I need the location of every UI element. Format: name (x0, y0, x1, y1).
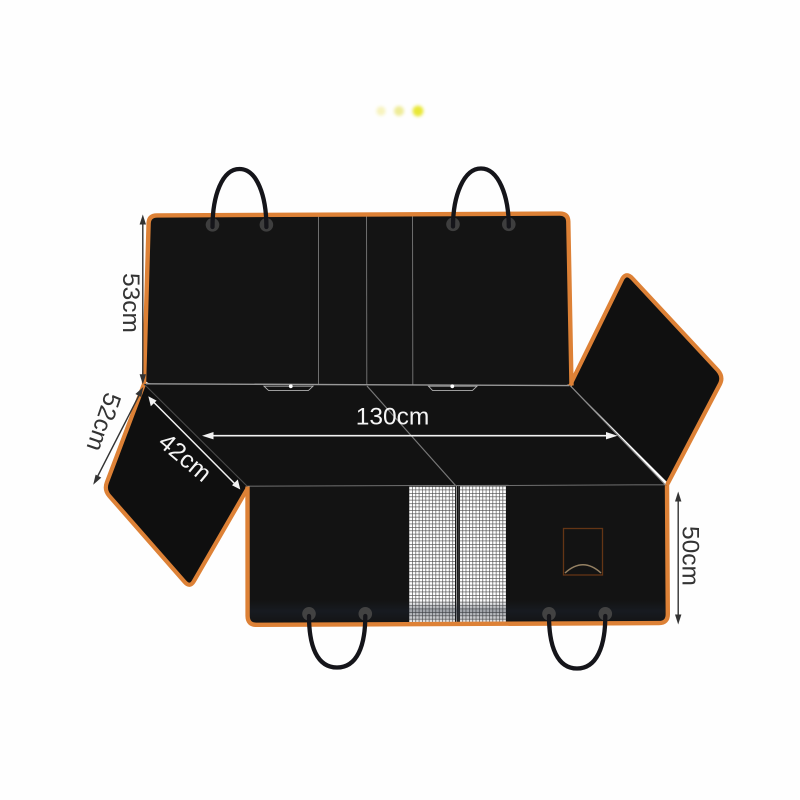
svg-text:50cm: 50cm (677, 526, 704, 586)
svg-text:53cm: 53cm (117, 273, 144, 333)
svg-text:130cm: 130cm (356, 404, 430, 431)
